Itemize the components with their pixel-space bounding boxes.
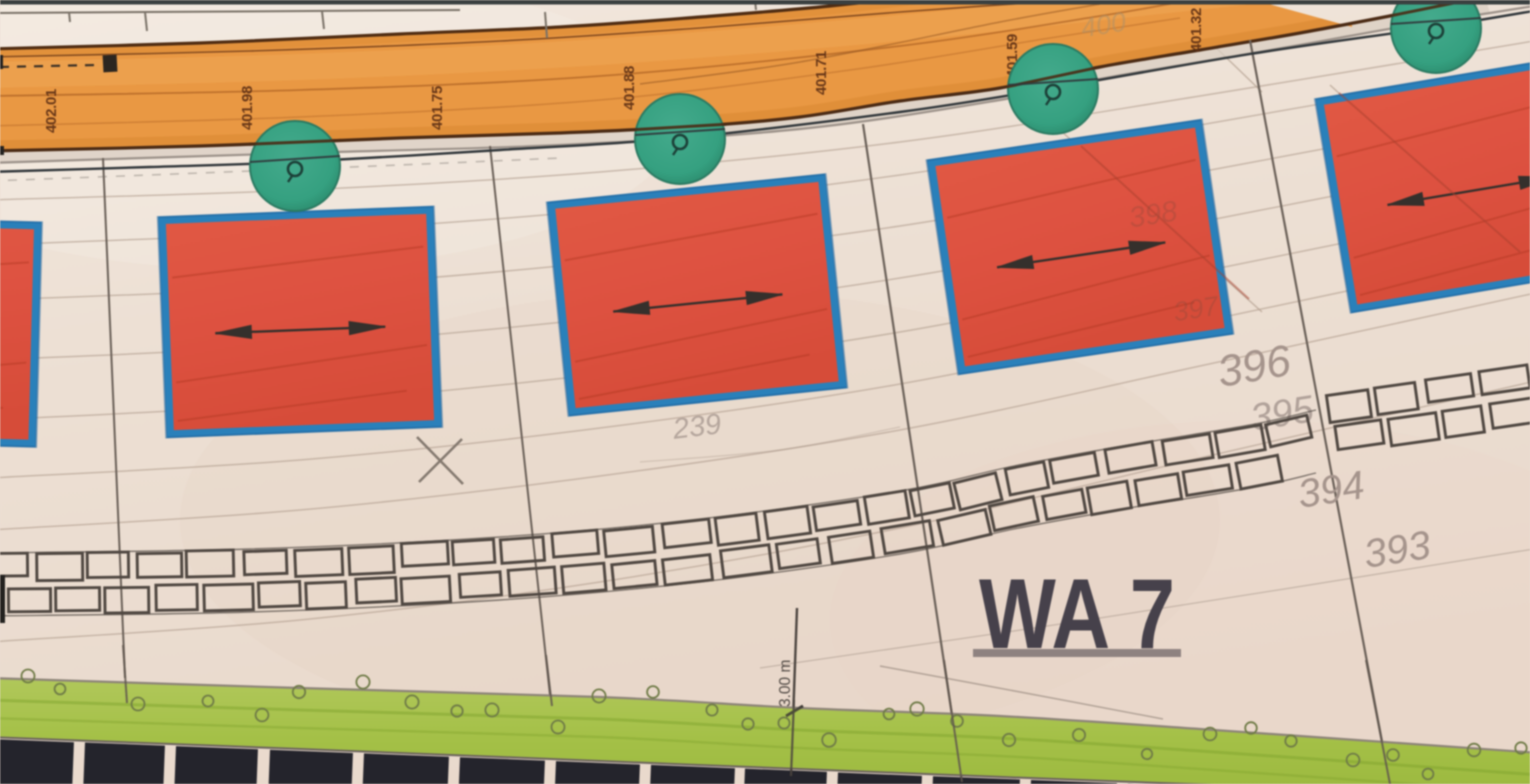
svg-text:402.01: 402.01 — [43, 89, 60, 133]
svg-text:401.32: 401.32 — [1188, 8, 1205, 52]
svg-text:401.71: 401.71 — [813, 51, 830, 95]
svg-text:3.00 m: 3.00 m — [777, 660, 794, 707]
svg-text:239: 239 — [670, 408, 723, 446]
svg-text:401.88: 401.88 — [621, 66, 638, 110]
svg-text:401.75: 401.75 — [429, 86, 446, 130]
svg-text:401.98: 401.98 — [239, 86, 256, 130]
